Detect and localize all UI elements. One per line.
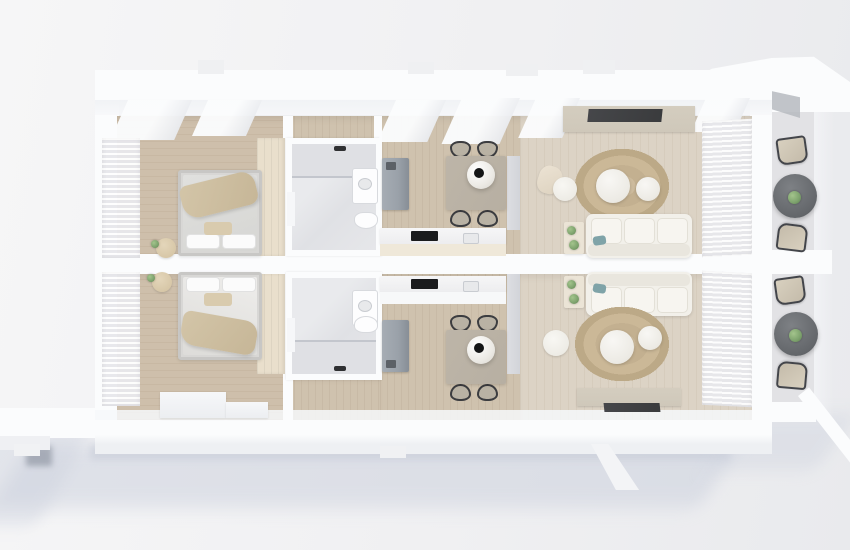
bed-pillow bbox=[186, 234, 220, 249]
balcony-chair bbox=[776, 361, 808, 391]
kitchen-pillar-bottom bbox=[507, 274, 520, 374]
bedroom-bench bbox=[160, 392, 226, 418]
bedroom-pouf-bottom bbox=[152, 272, 172, 292]
balcony-chair bbox=[773, 275, 806, 306]
toilet-bottom bbox=[354, 316, 378, 333]
bedroom-plant-bottom bbox=[147, 274, 155, 282]
bed-pillow bbox=[222, 234, 256, 249]
kitchen-sink-bottom bbox=[463, 281, 479, 292]
sink-bowl-top bbox=[358, 178, 372, 190]
pouf-top bbox=[553, 177, 577, 201]
sofa-cushion bbox=[657, 287, 688, 313]
toilet-top bbox=[354, 212, 378, 229]
sink-bowl-bottom bbox=[358, 300, 372, 312]
side-table-plant-bottom bbox=[567, 280, 576, 289]
coffee-table-top-small bbox=[636, 177, 660, 201]
dining-chair bbox=[477, 384, 498, 401]
balcony-chair bbox=[775, 135, 808, 166]
roof-stub bbox=[198, 60, 224, 74]
balcony-plant bbox=[789, 329, 802, 342]
bottom-wall bbox=[95, 418, 772, 446]
sofa-cushion bbox=[657, 218, 688, 244]
right-window-wall bbox=[750, 100, 772, 418]
teal-cushion-top bbox=[592, 235, 606, 246]
kitchen-counter-top bbox=[380, 228, 506, 244]
roof-stub bbox=[506, 64, 538, 76]
exterior-ledge-stub bbox=[14, 444, 40, 456]
balcony-plant bbox=[788, 191, 801, 204]
bed-pillow bbox=[222, 277, 256, 292]
bedroom-pouf-top bbox=[156, 238, 176, 258]
bed-pillow bbox=[186, 277, 220, 292]
side-table-plant-top bbox=[567, 226, 576, 235]
pouf-bottom bbox=[543, 330, 569, 356]
cooktop-top bbox=[411, 231, 438, 241]
tv-top bbox=[587, 109, 662, 122]
bathroom-door-bottom bbox=[287, 318, 295, 352]
curtains-left-top bbox=[102, 138, 140, 258]
pendant-bulb-top bbox=[474, 168, 484, 178]
cooktop-bottom bbox=[411, 279, 438, 289]
side-table-plant-bottom bbox=[569, 294, 579, 304]
roof-stub bbox=[583, 60, 615, 74]
coffee-table-top-large bbox=[596, 169, 630, 203]
coffee-table-bottom-large bbox=[600, 330, 634, 364]
sofa-cushion bbox=[624, 218, 655, 244]
kitchen-sink-top bbox=[463, 233, 479, 244]
tv-bottom bbox=[604, 403, 661, 412]
side-table-plant-top bbox=[569, 240, 579, 250]
dining-chair bbox=[450, 384, 471, 401]
balcony-chair bbox=[775, 222, 808, 252]
bed-cushion-bottom bbox=[204, 293, 232, 306]
bottom-wall-face bbox=[95, 444, 772, 454]
exterior-ledge bbox=[0, 408, 96, 438]
fridge-appliance-top bbox=[386, 162, 396, 170]
floor-plan-render bbox=[0, 0, 850, 550]
teal-cushion-bottom bbox=[592, 283, 606, 294]
kitchen-pillar-top bbox=[507, 156, 520, 230]
towel-rail-bottom bbox=[334, 366, 346, 371]
dining-chair bbox=[477, 210, 498, 227]
bedroom-plant-top bbox=[151, 240, 159, 248]
bedroom-bench-step bbox=[226, 402, 268, 418]
towel-rail-top bbox=[334, 146, 346, 151]
curtains-right-top bbox=[702, 119, 752, 258]
kitchen-counter-face-bottom bbox=[380, 292, 506, 304]
pendant-bulb-bottom bbox=[474, 343, 484, 353]
kitchen-counter-bottom bbox=[380, 276, 506, 292]
sofa-backrest-top bbox=[588, 244, 690, 256]
roof-stub bbox=[408, 62, 434, 74]
dining-chair bbox=[450, 210, 471, 227]
coffee-table-bottom-small bbox=[638, 326, 662, 350]
fridge-appliance-bottom bbox=[386, 360, 396, 368]
bottom-wall-stub bbox=[380, 446, 406, 458]
kitchen-counter-face-top bbox=[380, 244, 506, 256]
bed-cushion-top bbox=[204, 222, 232, 235]
curtains-right-bottom bbox=[702, 271, 752, 408]
bathroom-door-top bbox=[287, 192, 295, 226]
curtains-left-bottom bbox=[102, 272, 140, 406]
shower-glass-bottom bbox=[292, 340, 376, 342]
